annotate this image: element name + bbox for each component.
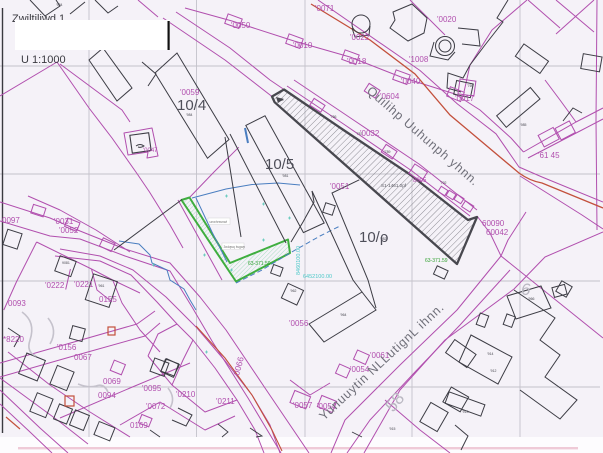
svg-text:6: 6 [521,280,531,299]
svg-text:'981: '981 [282,174,289,178]
svg-text:'914: '914 [487,352,494,356]
svg-text:0094: 0094 [98,391,116,400]
svg-text:0069: 0069 [103,377,121,386]
svg-text:'0020: '0020 [437,15,457,24]
svg-text:8460100.00: 8460100.00 [296,246,302,275]
svg-text:0169: 0169 [130,421,148,430]
svg-text:'912: '912 [490,369,497,373]
svg-text:'0059: '0059 [180,88,200,97]
svg-text:'0211: '0211 [216,397,235,406]
svg-text:'0017: '0017 [455,94,475,103]
svg-text:'0057: '0057 [293,401,313,410]
svg-text:S1-1461.0pf: S1-1461.0pf [381,183,407,188]
svg-text:'0010: '0010 [293,41,313,50]
svg-text:'0221: '0221 [74,280,94,289]
svg-text:'0156: '0156 [57,343,77,352]
svg-text:8005: 8005 [413,178,427,184]
svg-text:6452100.00: 6452100.00 [303,274,332,280]
svg-text:unwhnwnwl: unwhnwnwl [210,220,228,224]
svg-text:9081: 9081 [62,261,70,265]
svg-text:63-371.59: 63-371.59 [425,258,448,264]
svg-text:'0031: '0031 [54,217,74,226]
svg-text:*8220: *8220 [3,335,24,344]
svg-text:'0050: '0050 [231,21,251,30]
svg-text:'0222: '0222 [45,281,65,290]
svg-text:'61 45: '61 45 [538,151,560,160]
svg-text:'0056: '0056 [289,319,309,328]
svg-text:60042: 60042 [486,228,509,237]
svg-text:'0051: '0051 [330,182,350,191]
svg-text:'787: '787 [356,132,363,136]
svg-text:0155: 0155 [99,295,117,304]
svg-text:'0018: '0018 [347,57,367,66]
svg-text:'0040: '0040 [401,77,421,86]
svg-text:10/4: 10/4 [177,97,206,114]
svg-text:'0071: '0071 [315,4,335,13]
svg-text:'0032: '0032 [360,129,380,138]
svg-text:0097: 0097 [2,216,20,225]
svg-text:'915: '915 [389,427,396,431]
svg-text:0067: 0067 [74,353,92,362]
svg-text:'1008: '1008 [409,55,429,64]
svg-text:'984: '984 [56,3,63,7]
svg-text:'789: '789 [384,150,391,154]
svg-text:'0072: '0072 [146,402,166,411]
svg-text:10/ρ: 10/ρ [359,229,388,246]
svg-text:'913: '913 [462,410,469,414]
svg-text:'788: '788 [277,98,284,102]
svg-text:60090: 60090 [482,219,505,228]
svg-text:'792: '792 [440,181,447,185]
svg-text:63-371.59: 63-371.59 [248,261,271,267]
svg-text:'961: '961 [98,284,105,288]
svg-text:'0095: '0095 [142,384,162,393]
svg-text:'0210: '0210 [176,390,196,399]
svg-text:'985: '985 [520,123,527,127]
svg-text:0093: 0093 [8,299,26,308]
svg-text:U 1:1000: U 1:1000 [21,54,66,66]
svg-text:'964: '964 [340,313,347,317]
svg-text:'962: '962 [290,289,297,293]
svg-text:'0052: '0052 [59,226,79,235]
svg-text:'0047: '0047 [143,148,158,154]
svg-text:'0022: '0022 [350,33,370,42]
svg-text:3wlqwq lwgwp: 3wlqwq lwgwp [224,245,246,249]
svg-text:'769: '769 [467,84,474,88]
svg-text:10/5: 10/5 [265,156,294,173]
svg-text:'786: '786 [330,115,337,119]
